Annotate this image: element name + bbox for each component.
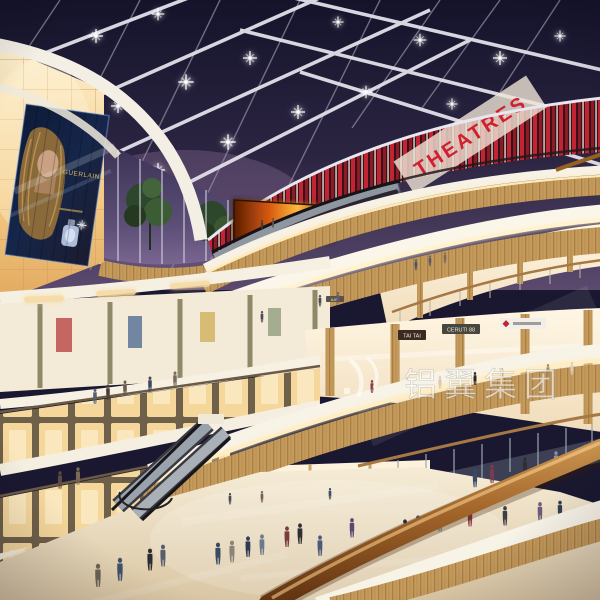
watermark-text: 铝翼集团 <box>404 366 564 403</box>
mall-atrium-render: Night interior rendering of a multi-leve… <box>0 0 600 600</box>
svg-text:CERUTI 88: CERUTI 88 <box>447 328 475 334</box>
store-sign-ajpi: AJPI <box>326 296 344 302</box>
svg-text:TAI TAI: TAI TAI <box>403 334 421 340</box>
store-sign-taitai: TAI TAI <box>398 330 426 340</box>
store-sign-ceruti: CERUTI 88 <box>442 324 480 334</box>
store-sign-red-logo <box>500 318 546 329</box>
render-canvas: GUERLAIN THEATRES CERUTI 88 TAI TA <box>0 0 600 600</box>
